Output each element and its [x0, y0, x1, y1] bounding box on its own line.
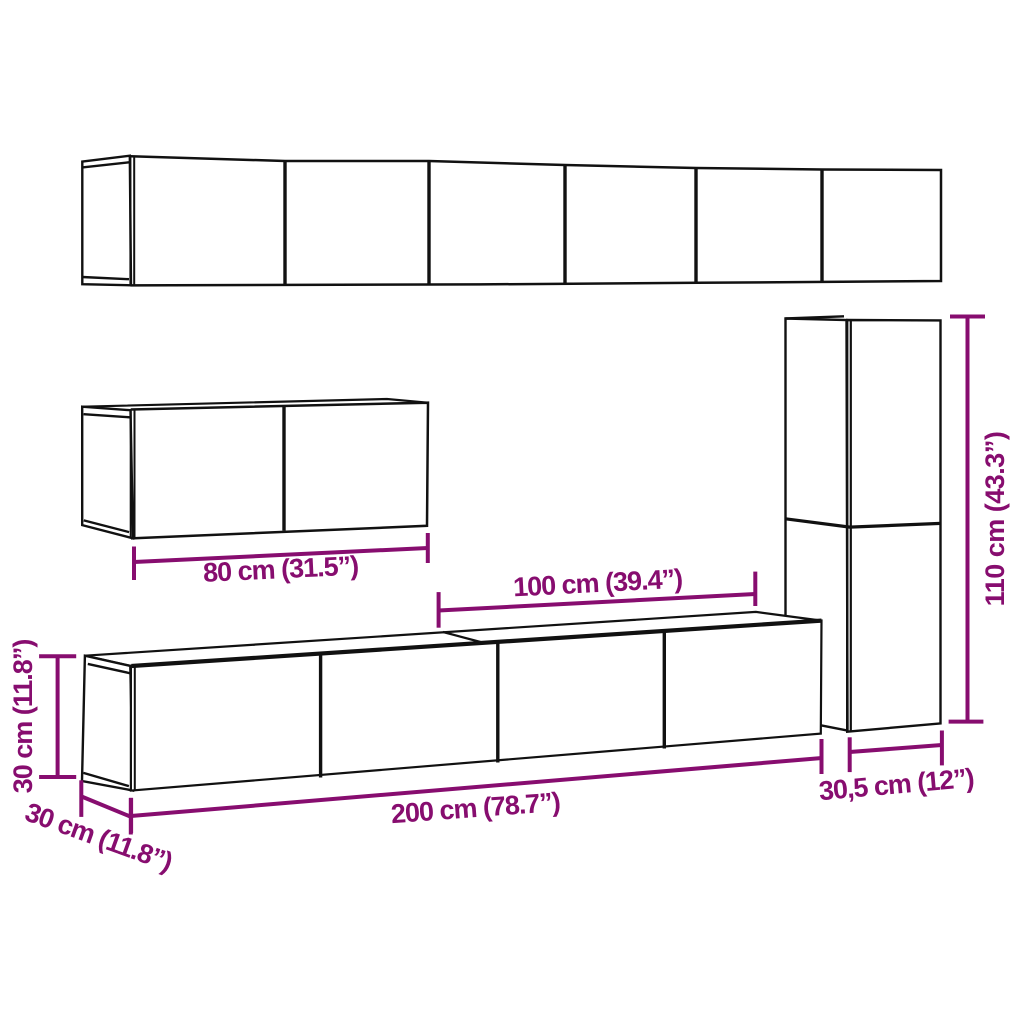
svg-text:30 cm (11.8”): 30 cm (11.8”) [8, 640, 38, 794]
svg-text:110 cm (43.3”): 110 cm (43.3”) [980, 432, 1010, 607]
